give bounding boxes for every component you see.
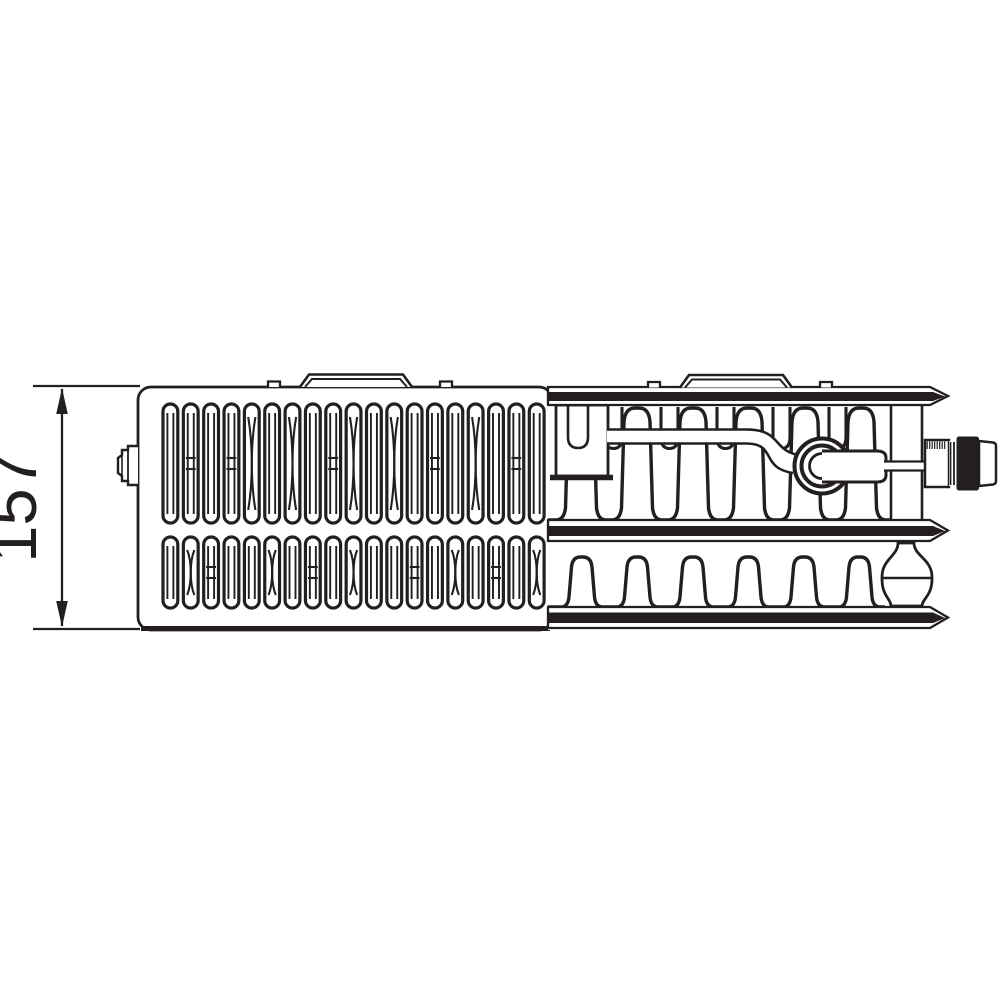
dimension-value: 157: [0, 451, 51, 563]
mounting-bracket-left: [268, 375, 452, 388]
end-cap: [979, 441, 996, 486]
panel-plate-rear: [548, 607, 948, 628]
grille-slot: [407, 537, 422, 608]
grille-slot: [529, 404, 544, 523]
grille-slot: [448, 404, 463, 523]
distributor-block: [556, 405, 608, 476]
grille-slot: [489, 404, 504, 523]
grille-slot: [326, 537, 341, 608]
arrowhead-up-icon: [56, 388, 68, 414]
grille-slot: [428, 537, 443, 608]
grille-section: [118, 375, 552, 631]
knurled-ring: [957, 437, 980, 491]
grille-slot: [204, 537, 219, 608]
grille-slot: [407, 404, 422, 523]
grille-slot: [224, 404, 239, 523]
grille-slot: [244, 537, 259, 608]
grille-slot: [326, 404, 341, 523]
grille-slot: [163, 404, 178, 523]
grille-slot: [509, 537, 524, 608]
grille-slot: [489, 537, 504, 608]
radiator-technical-drawing: 157: [0, 0, 1000, 1000]
grille-slot: [367, 404, 382, 523]
cutaway-section: [548, 375, 996, 630]
grille-slot: [183, 404, 198, 523]
grille-slot: [509, 404, 524, 523]
right-valve-connection: [925, 437, 996, 491]
left-valve-spindle: [118, 446, 138, 485]
grille-slot: [285, 537, 300, 608]
grille-slot: [265, 404, 280, 523]
panel-plate-middle: [548, 520, 948, 541]
grille-slot: [367, 537, 382, 608]
grille-slot: [387, 537, 402, 608]
grille-slot: [305, 404, 320, 523]
grille-slot: [163, 537, 178, 608]
arrowhead-down-icon: [56, 601, 68, 627]
dimension-annotation: 157: [0, 386, 140, 629]
grille-slot: [305, 537, 320, 608]
grille-slot: [468, 537, 483, 608]
panel-plate-front: [548, 387, 948, 405]
grille-slot: [428, 404, 443, 523]
grille-slot: [204, 404, 219, 523]
valve-insert-body: [822, 451, 886, 482]
grille-slot: [224, 537, 239, 608]
diagram-canvas: 157: [0, 0, 1000, 1000]
